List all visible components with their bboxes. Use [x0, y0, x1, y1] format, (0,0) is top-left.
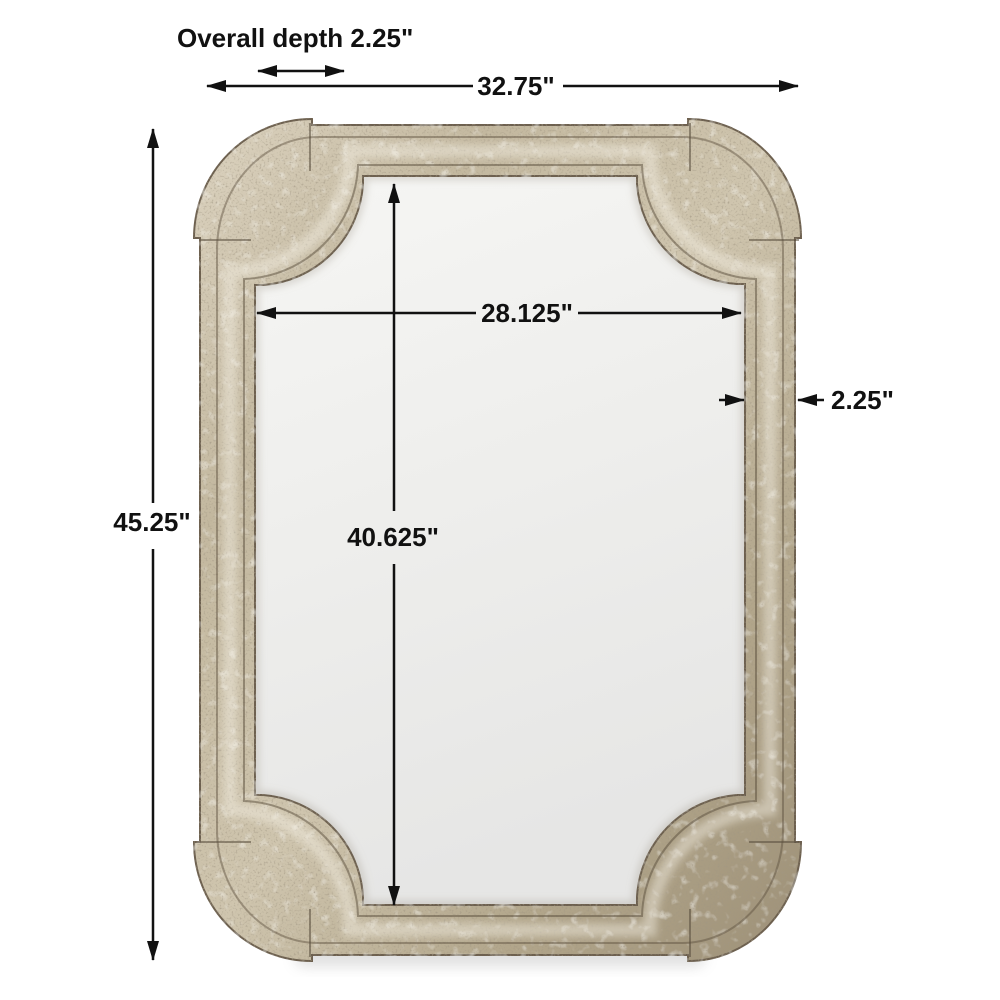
diagram-canvas: Overall depth 2.25" 32.75" 45.25" 28.125…	[0, 0, 1000, 1000]
label-frame-thickness: 2.25"	[831, 385, 894, 415]
mirror-dimension-diagram: Overall depth 2.25" 32.75" 45.25" 28.125…	[0, 0, 1000, 1000]
label-overall-depth: Overall depth 2.25"	[177, 23, 413, 53]
label-overall-height: 45.25"	[113, 507, 190, 537]
label-inner-width: 28.125"	[481, 298, 573, 328]
label-inner-height: 40.625"	[347, 522, 439, 552]
mirror-glass	[255, 176, 745, 905]
label-overall-width: 32.75"	[477, 71, 554, 101]
